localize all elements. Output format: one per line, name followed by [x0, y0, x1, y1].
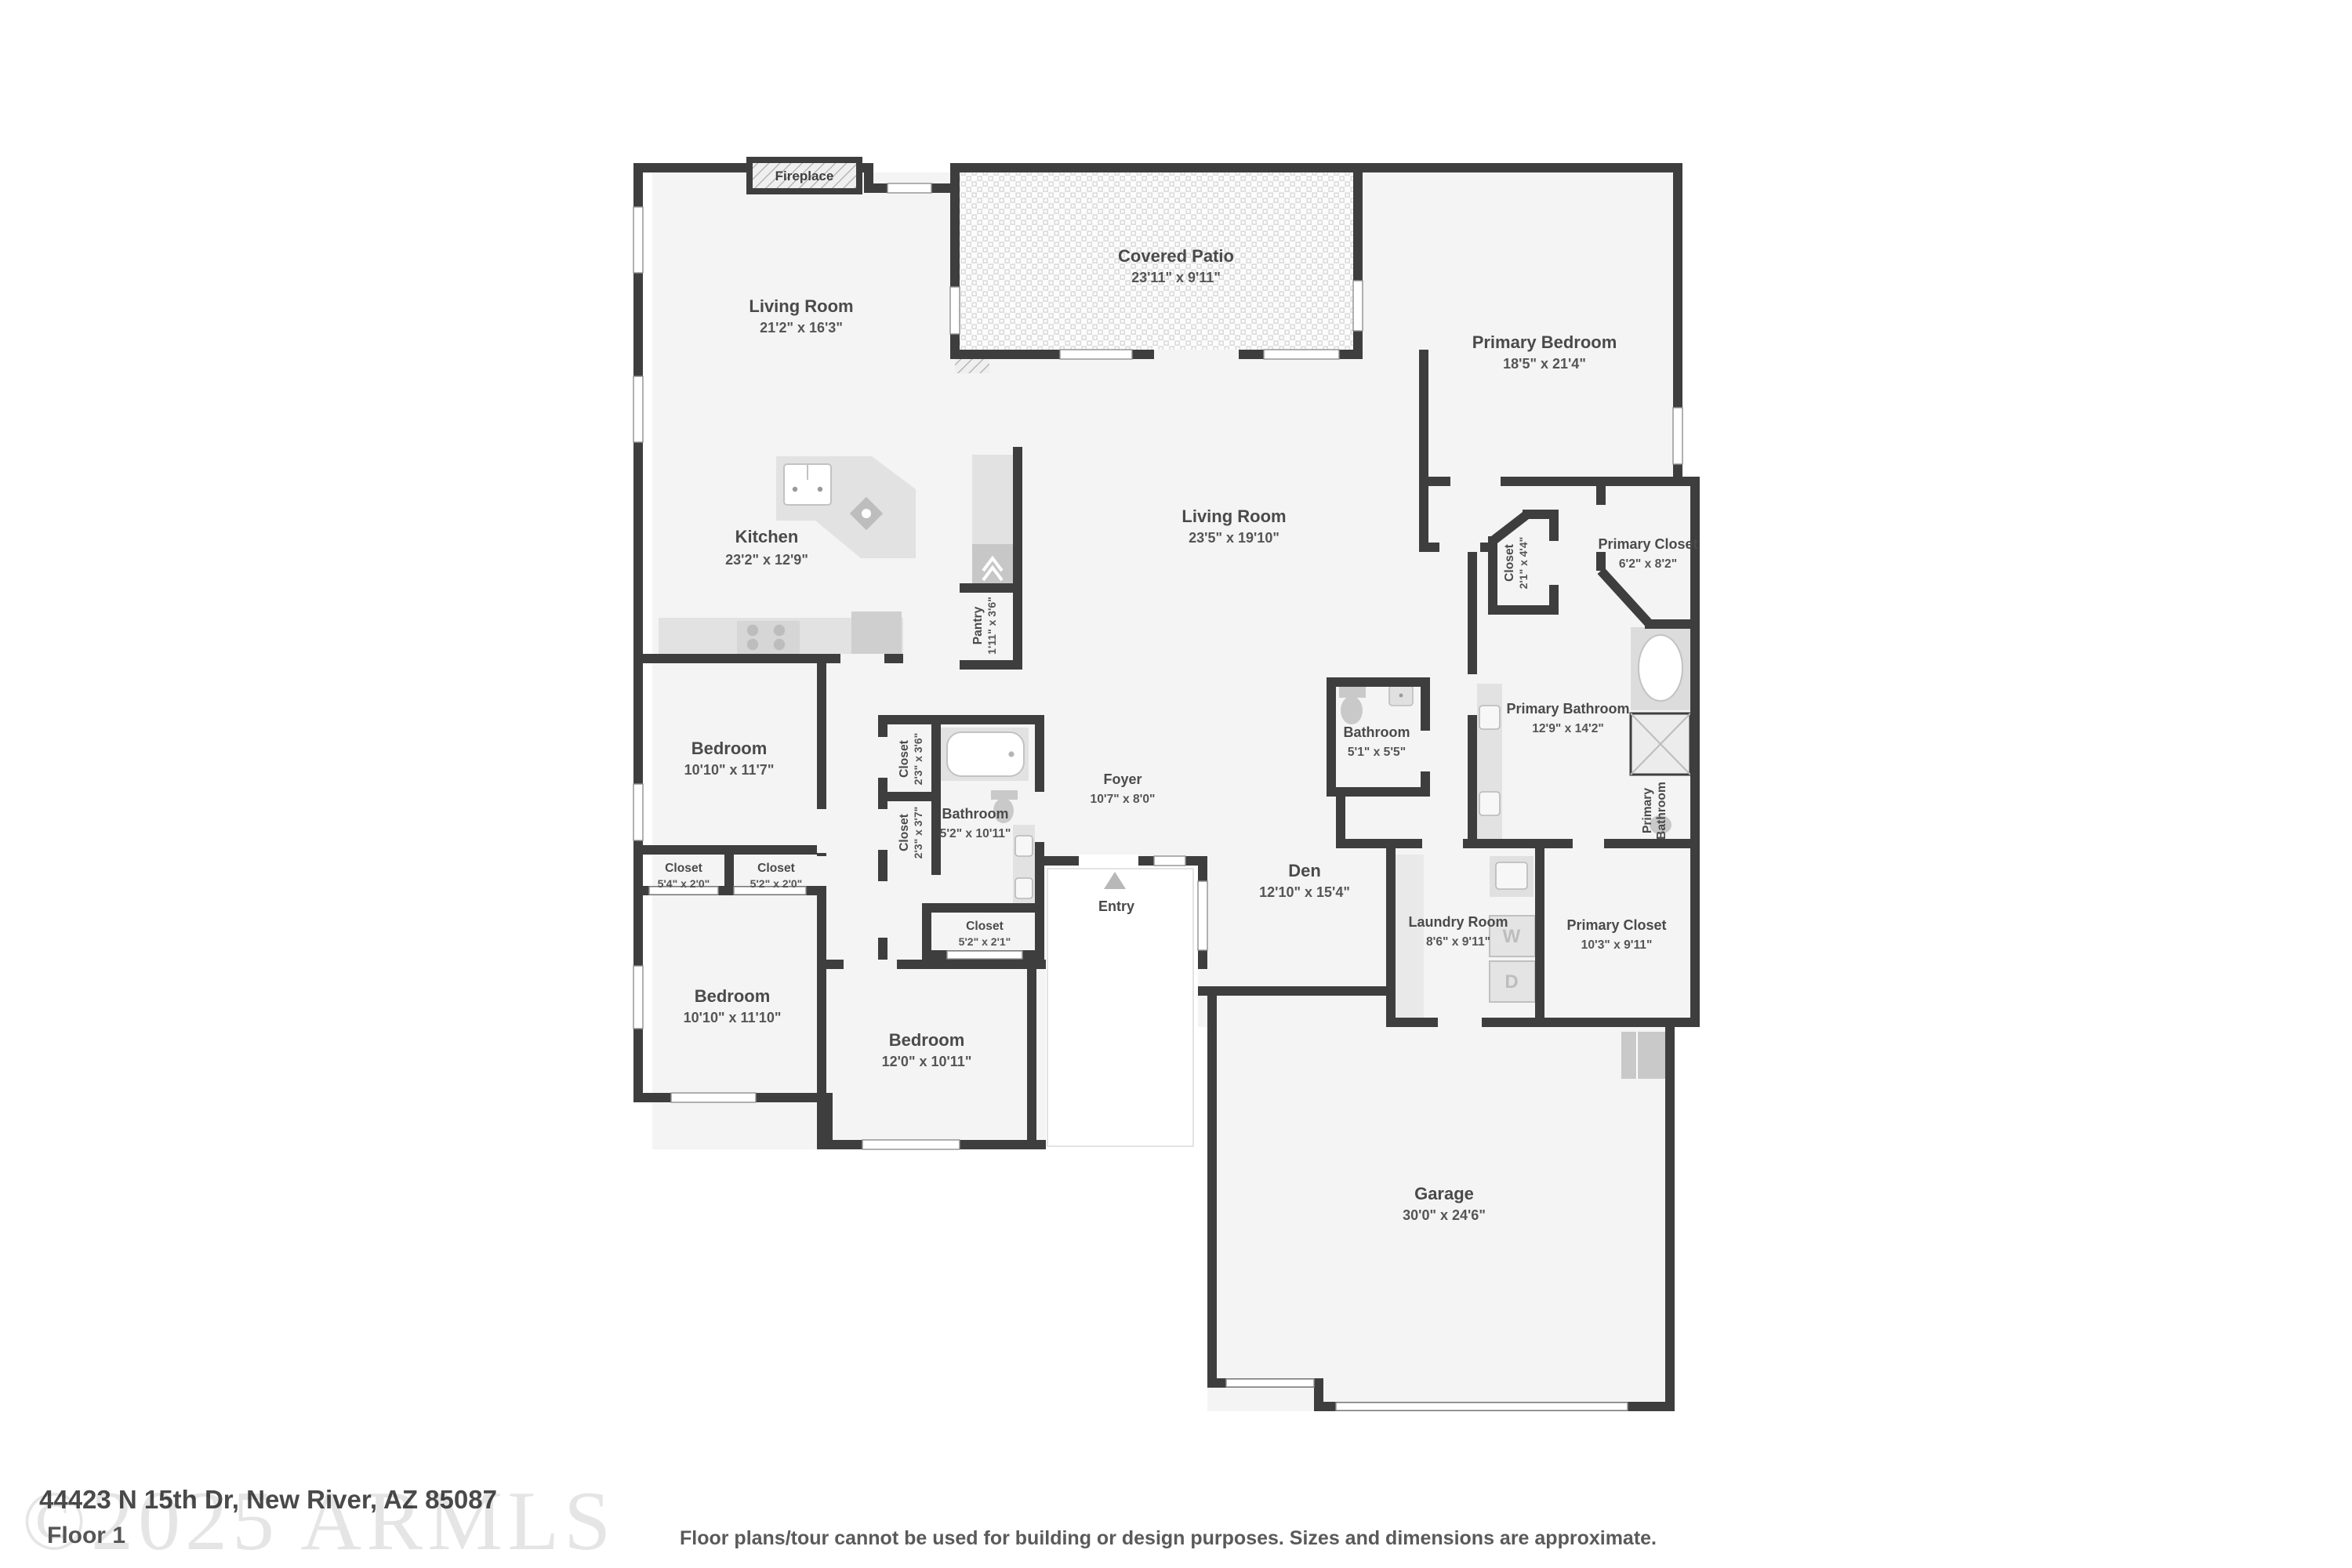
wall — [633, 163, 643, 1102]
wall — [1336, 787, 1345, 848]
wall — [960, 583, 1013, 593]
wall — [1207, 993, 1217, 1388]
toilet-tank — [1339, 687, 1366, 698]
wall — [950, 163, 1682, 172]
wall — [1488, 605, 1559, 615]
sink — [1015, 878, 1033, 898]
disclaimer-text: Floor plans/tour cannot be used for buil… — [680, 1527, 1657, 1549]
wall — [1665, 1018, 1700, 1027]
wall — [1327, 677, 1336, 797]
patio-threshold — [955, 359, 989, 373]
water-heater — [1621, 1032, 1665, 1079]
dryer-label: D — [1504, 971, 1518, 993]
wall — [1345, 839, 1700, 848]
wall — [1419, 350, 1428, 552]
wall — [1488, 536, 1497, 615]
front-door-opening — [1079, 855, 1138, 867]
wall — [1327, 677, 1430, 687]
fireplace-label: Fireplace — [775, 169, 834, 183]
wall — [1535, 848, 1544, 1027]
wall — [878, 715, 1044, 724]
appliance-box — [972, 544, 1013, 583]
sink — [1479, 706, 1500, 729]
sink — [1479, 792, 1500, 815]
entry-arrow-icon — [1104, 872, 1126, 889]
refrigerator — [851, 612, 902, 654]
floor-plan-canvas: Fireplace Living Room21'2" x 16'3" Cover… — [0, 0, 2352, 1568]
laundry-counter — [1396, 855, 1424, 1018]
garage-door — [1226, 1379, 1314, 1387]
armls-watermark: ©2025 ARMLS — [22, 1475, 615, 1568]
garage-door — [1336, 1403, 1628, 1410]
wall — [1386, 848, 1396, 1027]
wall — [922, 903, 931, 960]
wall — [633, 845, 826, 855]
floor-label: Floor 1 — [47, 1523, 125, 1548]
wall — [1665, 1027, 1675, 1411]
wall — [960, 660, 1022, 670]
stove — [737, 621, 800, 654]
wall — [931, 903, 1044, 913]
floor-plan-page: Fireplace Living Room21'2" x 16'3" Cover… — [0, 0, 2352, 1568]
wall — [931, 724, 941, 875]
washer-label: W — [1503, 926, 1521, 947]
wall — [1013, 447, 1022, 670]
wall — [1386, 1018, 1700, 1027]
wall — [1690, 848, 1700, 1027]
footer: 44423 N 15th Dr, New River, AZ 85087 ©20… — [22, 1475, 1657, 1568]
garden-tub — [1639, 635, 1682, 701]
wall — [1198, 986, 1396, 996]
cabinet-column — [972, 455, 1013, 544]
entry-label: Entry — [1098, 898, 1134, 914]
wall — [1596, 477, 1700, 486]
wall — [1690, 477, 1700, 848]
wall — [1027, 960, 1036, 1149]
sink — [1015, 836, 1033, 856]
toilet — [1341, 696, 1363, 724]
wall — [643, 654, 840, 663]
wall — [884, 654, 903, 663]
laundry-sink — [1496, 862, 1527, 889]
room-label-primary-bathroom-wc: PrimaryBathroom — [1641, 782, 1668, 840]
